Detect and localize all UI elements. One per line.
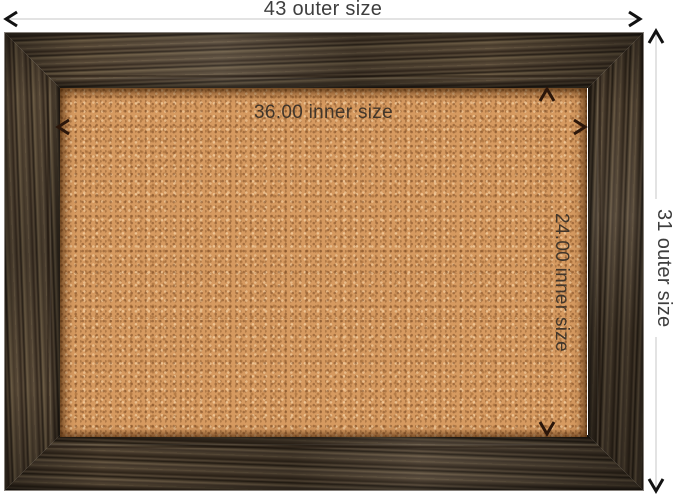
product-image: 43 outer size 31 outer size 36.00 inner … xyxy=(0,0,679,496)
inner-width-label: 36.00 inner size xyxy=(60,102,587,124)
inner-height-label: 24.00 inner size xyxy=(548,206,574,358)
outer-height-label: 31 outer size xyxy=(649,199,679,337)
cork-surface xyxy=(60,88,587,437)
outer-width-label: 43 outer size xyxy=(5,0,641,20)
arrow-up-icon xyxy=(649,31,663,43)
cork-seam-line xyxy=(60,273,587,274)
cork-seam-line xyxy=(60,318,587,319)
arrow-down-icon xyxy=(649,479,663,491)
